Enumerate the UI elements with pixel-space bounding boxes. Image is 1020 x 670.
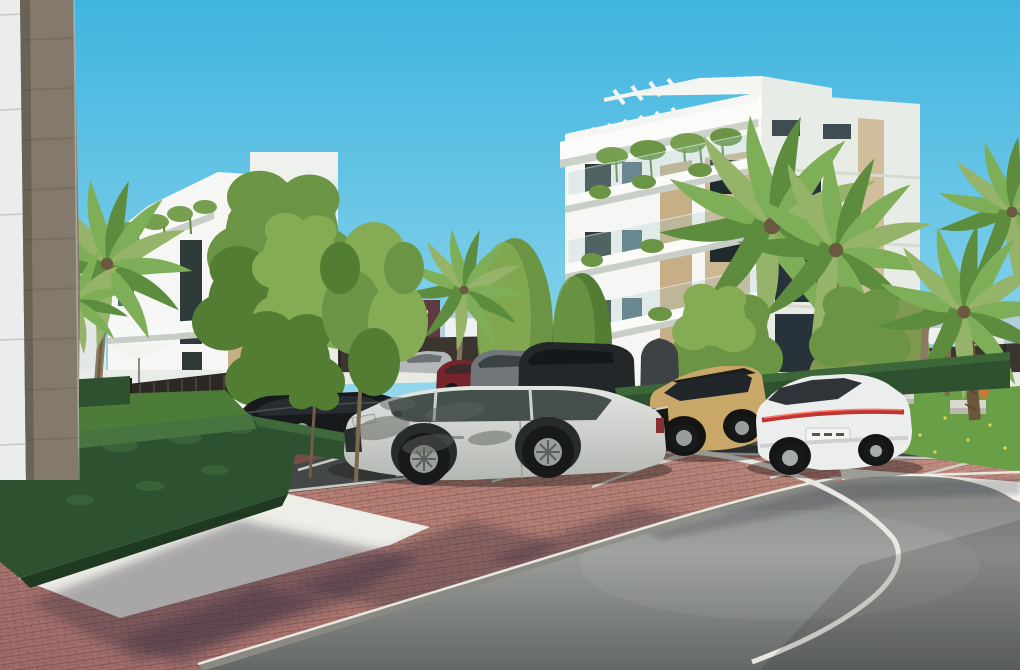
foreground-wall	[0, 0, 80, 480]
white-suv-glass	[388, 390, 612, 422]
render-image	[0, 0, 1020, 670]
scene-svg	[0, 0, 1020, 670]
